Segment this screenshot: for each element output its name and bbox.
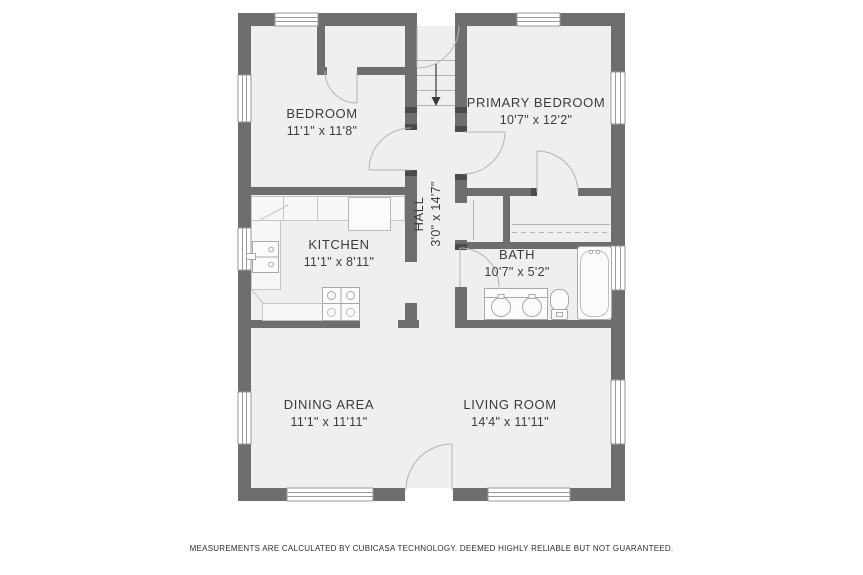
wall-segment (455, 26, 467, 132)
floor-plan-page: BEDROOM 11'1" x 11'8" PRIMARY BEDROOM 10… (0, 0, 863, 575)
room-label-primary-bedroom: PRIMARY BEDROOM 10'7" x 12'2" (467, 95, 606, 127)
door-jamb (531, 188, 537, 196)
room-label-kitchen: KITCHEN 11'1" x 8'11" (304, 237, 375, 269)
door-jamb (405, 124, 417, 130)
door-jamb (455, 126, 467, 132)
room-label-hall: HALL 3'0" x 14'7" (411, 181, 443, 246)
room-name: HALL (411, 181, 426, 246)
room-name: PRIMARY BEDROOM (467, 95, 606, 110)
wall-segment (251, 320, 360, 328)
room-label-bath: BATH 10'7" x 5'2" (484, 247, 549, 279)
wall-outer-left (238, 13, 251, 501)
wall-segment (251, 187, 417, 195)
room-name: LIVING ROOM (463, 397, 556, 412)
room-dimensions: 11'1" x 11'11" (284, 415, 374, 429)
room-dimensions: 11'1" x 8'11" (304, 255, 375, 269)
room-dimensions: 11'1" x 11'8" (286, 124, 357, 138)
wall-segment (578, 188, 612, 196)
door-jamb (455, 107, 467, 113)
wall-segment (317, 67, 327, 75)
room-dimensions: 3'0" x 14'7" (429, 181, 443, 246)
room-name: KITCHEN (304, 237, 375, 252)
wall-segment (405, 26, 417, 130)
wall-segment (398, 320, 419, 328)
room-name: DINING AREA (284, 397, 374, 412)
room-dimensions: 10'7" x 5'2" (484, 265, 549, 279)
wall-segment (455, 188, 537, 196)
wall-segment (357, 67, 410, 75)
door-jamb (455, 244, 467, 250)
room-label-bedroom: BEDROOM 11'1" x 11'8" (286, 106, 357, 138)
wall-outer-right (611, 13, 625, 501)
room-name: BEDROOM (286, 106, 357, 121)
door-jamb (405, 107, 417, 113)
door-jamb (455, 174, 467, 180)
door-jamb (405, 170, 417, 176)
room-label-dining-area: DINING AREA 11'1" x 11'11" (284, 397, 374, 429)
room-dimensions: 10'7" x 12'2" (467, 113, 606, 127)
room-dimensions: 14'4" x 11'11" (463, 415, 556, 429)
wall-outer-bottom (238, 488, 625, 501)
wall-segment (455, 320, 625, 328)
room-name: BATH (484, 247, 549, 262)
measurement-disclaimer: MEASUREMENTS ARE CALCULATED BY CUBICASA … (0, 544, 863, 553)
wall-outer-top (238, 13, 625, 26)
room-label-living-room: LIVING ROOM 14'4" x 11'11" (463, 397, 556, 429)
